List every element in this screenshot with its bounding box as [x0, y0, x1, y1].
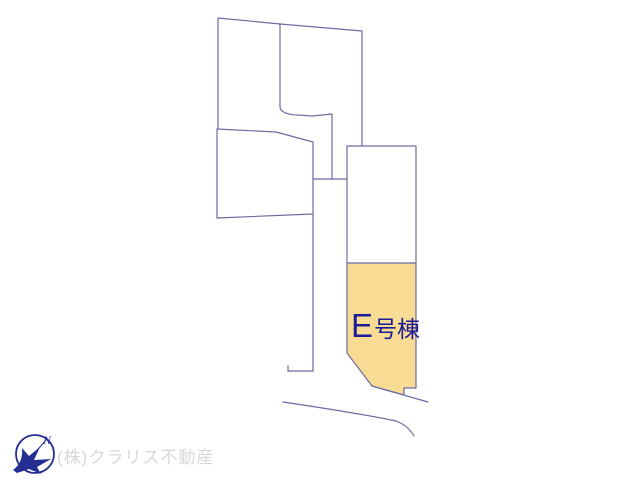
site-plan-drawing: E号棟 N (株)クラリス不動産: [0, 0, 640, 480]
north-label: N: [42, 433, 52, 447]
road-curve-line: [283, 402, 414, 436]
compass-icon: N: [13, 433, 54, 474]
e-parcel-label-letter: E: [351, 307, 374, 344]
e-building-outline: [347, 146, 416, 263]
parcel-outline-top: [218, 18, 362, 129]
parcel-outline-left-bottom: [217, 129, 313, 218]
parcel-outline-top-left-right-edge: [280, 24, 332, 116]
site-plan-canvas: E号棟 N (株)クラリス不動産: [0, 0, 640, 480]
e-parcel-label-suffix: 号棟: [374, 316, 420, 342]
parcel-outline-left-top-edge: [217, 129, 313, 142]
company-watermark: (株)クラリス不動産: [57, 448, 214, 467]
access-corridor-line: [288, 142, 313, 371]
